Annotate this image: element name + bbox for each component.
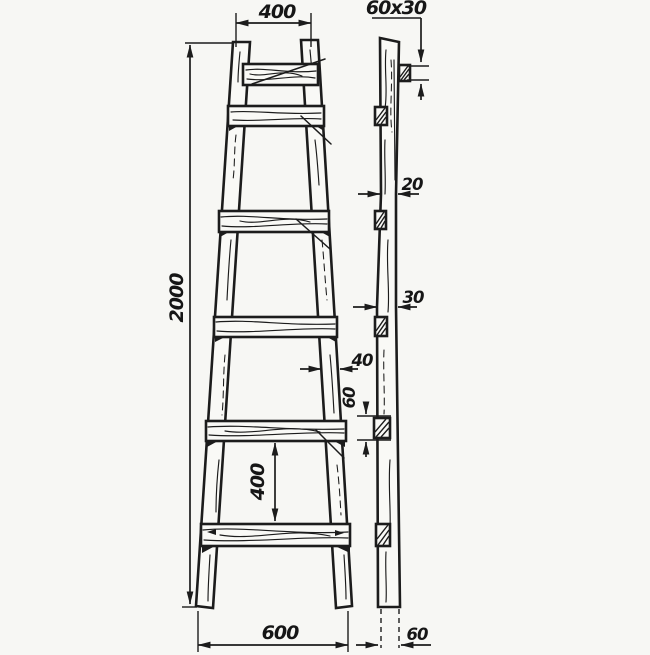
tenon — [375, 107, 387, 125]
rung — [219, 211, 329, 232]
dim-foot-width-label: 60 — [407, 625, 428, 644]
dim-stile-width-label: 40 — [351, 351, 373, 370]
ladder-technical-drawing: 400 2000 600 400 40 60x30 20 — [0, 0, 650, 655]
front-view — [196, 40, 352, 608]
dim-foot-width: 60 — [356, 625, 431, 645]
tenon — [375, 211, 386, 229]
rung — [228, 106, 324, 126]
dim-bottom-width-label: 600 — [262, 622, 299, 644]
dim-stile-thickness-middle-label: 30 — [403, 288, 424, 307]
dim-rung-spacing: 400 — [247, 443, 275, 521]
tenon — [376, 524, 390, 546]
tenon — [399, 65, 410, 81]
rung — [214, 317, 337, 337]
dim-overall-height-label: 2000 — [166, 273, 188, 323]
dim-rung-spacing-label: 400 — [247, 463, 269, 501]
tenon — [375, 317, 387, 336]
dim-stile-section-label: 60x30 — [366, 0, 427, 19]
dim-top-width-label: 400 — [258, 1, 296, 23]
tenon — [374, 418, 390, 438]
dim-stile-thickness-top-label: 20 — [402, 175, 423, 194]
dim-bottom-width: 600 — [198, 611, 348, 652]
dim-tenon-height-label: 60 — [340, 387, 359, 408]
side-view — [374, 38, 410, 648]
